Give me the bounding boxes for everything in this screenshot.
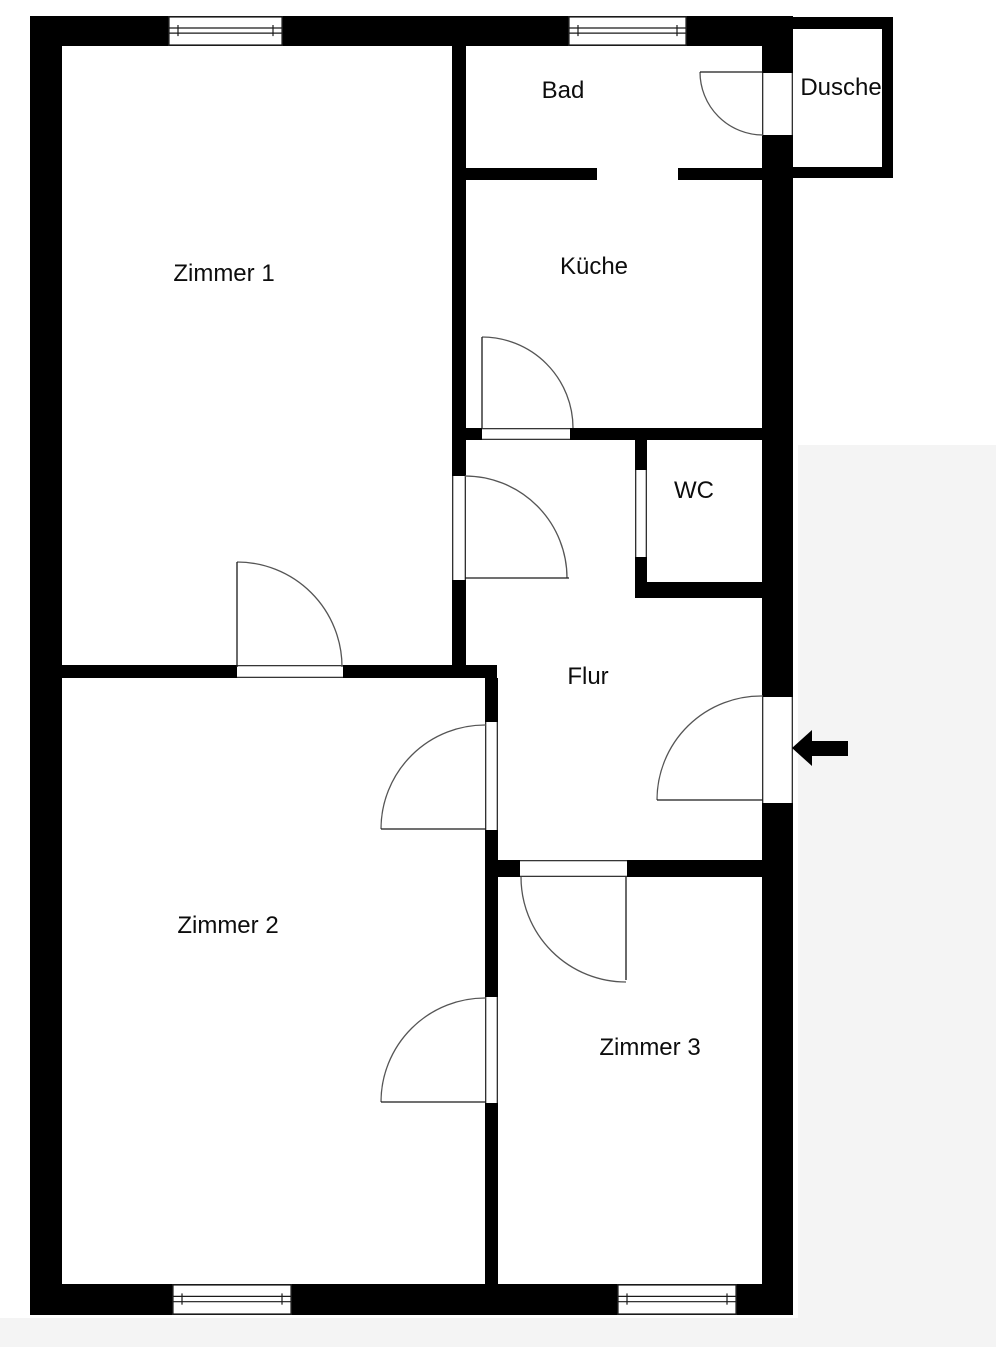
door-swing-arc <box>465 476 567 578</box>
wall <box>678 168 762 180</box>
wall <box>762 135 793 697</box>
window <box>168 16 283 46</box>
wall <box>570 428 762 440</box>
door-swing-arc <box>381 998 486 1102</box>
wall <box>30 16 62 1315</box>
door-opening <box>485 722 498 830</box>
door-swing-arc <box>700 72 763 135</box>
door-swing-arc <box>521 877 626 982</box>
wall <box>793 17 893 29</box>
door-opening <box>482 428 570 440</box>
room-label-flur: Flur <box>567 665 608 689</box>
wall <box>485 830 498 997</box>
wall <box>485 1103 498 1284</box>
room-label-dusche: Dusche <box>800 76 881 100</box>
wall <box>343 665 497 678</box>
door-opening <box>452 476 466 580</box>
floorplan-drawing <box>0 0 996 1347</box>
wall <box>30 1284 172 1315</box>
wall <box>292 1284 617 1315</box>
door-opening <box>485 997 498 1103</box>
window <box>172 1284 292 1315</box>
wall <box>627 860 762 877</box>
room-label-zimmer-3: Zimmer 3 <box>599 1036 700 1060</box>
window <box>568 16 687 46</box>
wall <box>452 428 482 440</box>
wall <box>493 860 520 877</box>
room-label-zimmer-2: Zimmer 2 <box>177 914 278 938</box>
floorplan-canvas: Zimmer 1BadDuscheKücheWCFlurZimmer 2Zimm… <box>0 0 996 1347</box>
door-swing-arc <box>657 696 763 800</box>
outside-shade <box>0 1318 996 1347</box>
door-swing-arc <box>482 337 573 428</box>
wall <box>466 168 597 180</box>
door-swing-arc <box>237 562 342 667</box>
wall <box>635 440 647 470</box>
outside-shade <box>798 445 996 1347</box>
door-opening <box>520 860 627 877</box>
wall <box>762 16 793 73</box>
door-swing-arc <box>381 725 486 829</box>
wall <box>793 167 893 178</box>
window <box>617 1284 737 1315</box>
wall <box>452 440 466 476</box>
room-label-bad: Bad <box>542 79 585 103</box>
room-label-kueche: Küche <box>560 255 628 279</box>
door-opening <box>237 665 343 678</box>
room-label-zimmer-1: Zimmer 1 <box>173 262 274 286</box>
door-opening <box>762 697 793 803</box>
room-label-wc: WC <box>674 479 714 503</box>
door-opening <box>635 470 647 557</box>
wall <box>635 582 762 598</box>
wall <box>62 665 237 678</box>
wall <box>762 803 793 1315</box>
wall <box>452 46 466 440</box>
wall <box>485 678 498 722</box>
door-opening <box>762 73 793 135</box>
wall <box>283 16 568 46</box>
wall <box>452 580 466 678</box>
wall <box>882 29 893 178</box>
